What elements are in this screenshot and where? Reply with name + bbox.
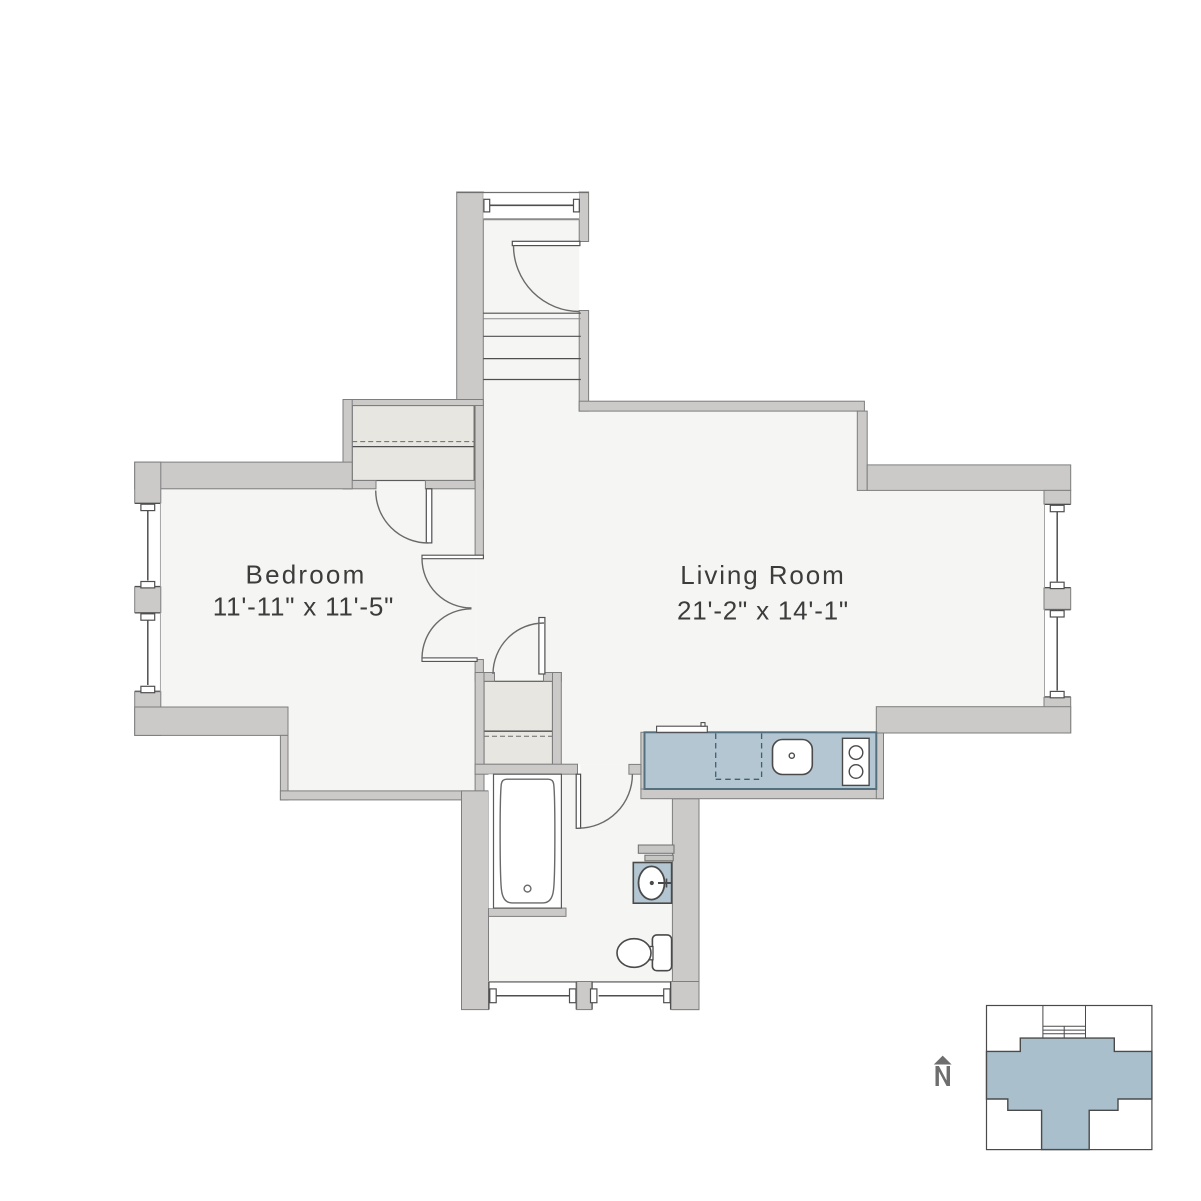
svg-text:21'-2" x 14'-1": 21'-2" x 14'-1" xyxy=(677,596,849,626)
svg-text:Living Room: Living Room xyxy=(680,560,845,590)
svg-text:Bedroom: Bedroom xyxy=(246,560,367,590)
svg-text:11'-11" x 11'-5": 11'-11" x 11'-5" xyxy=(213,592,394,622)
